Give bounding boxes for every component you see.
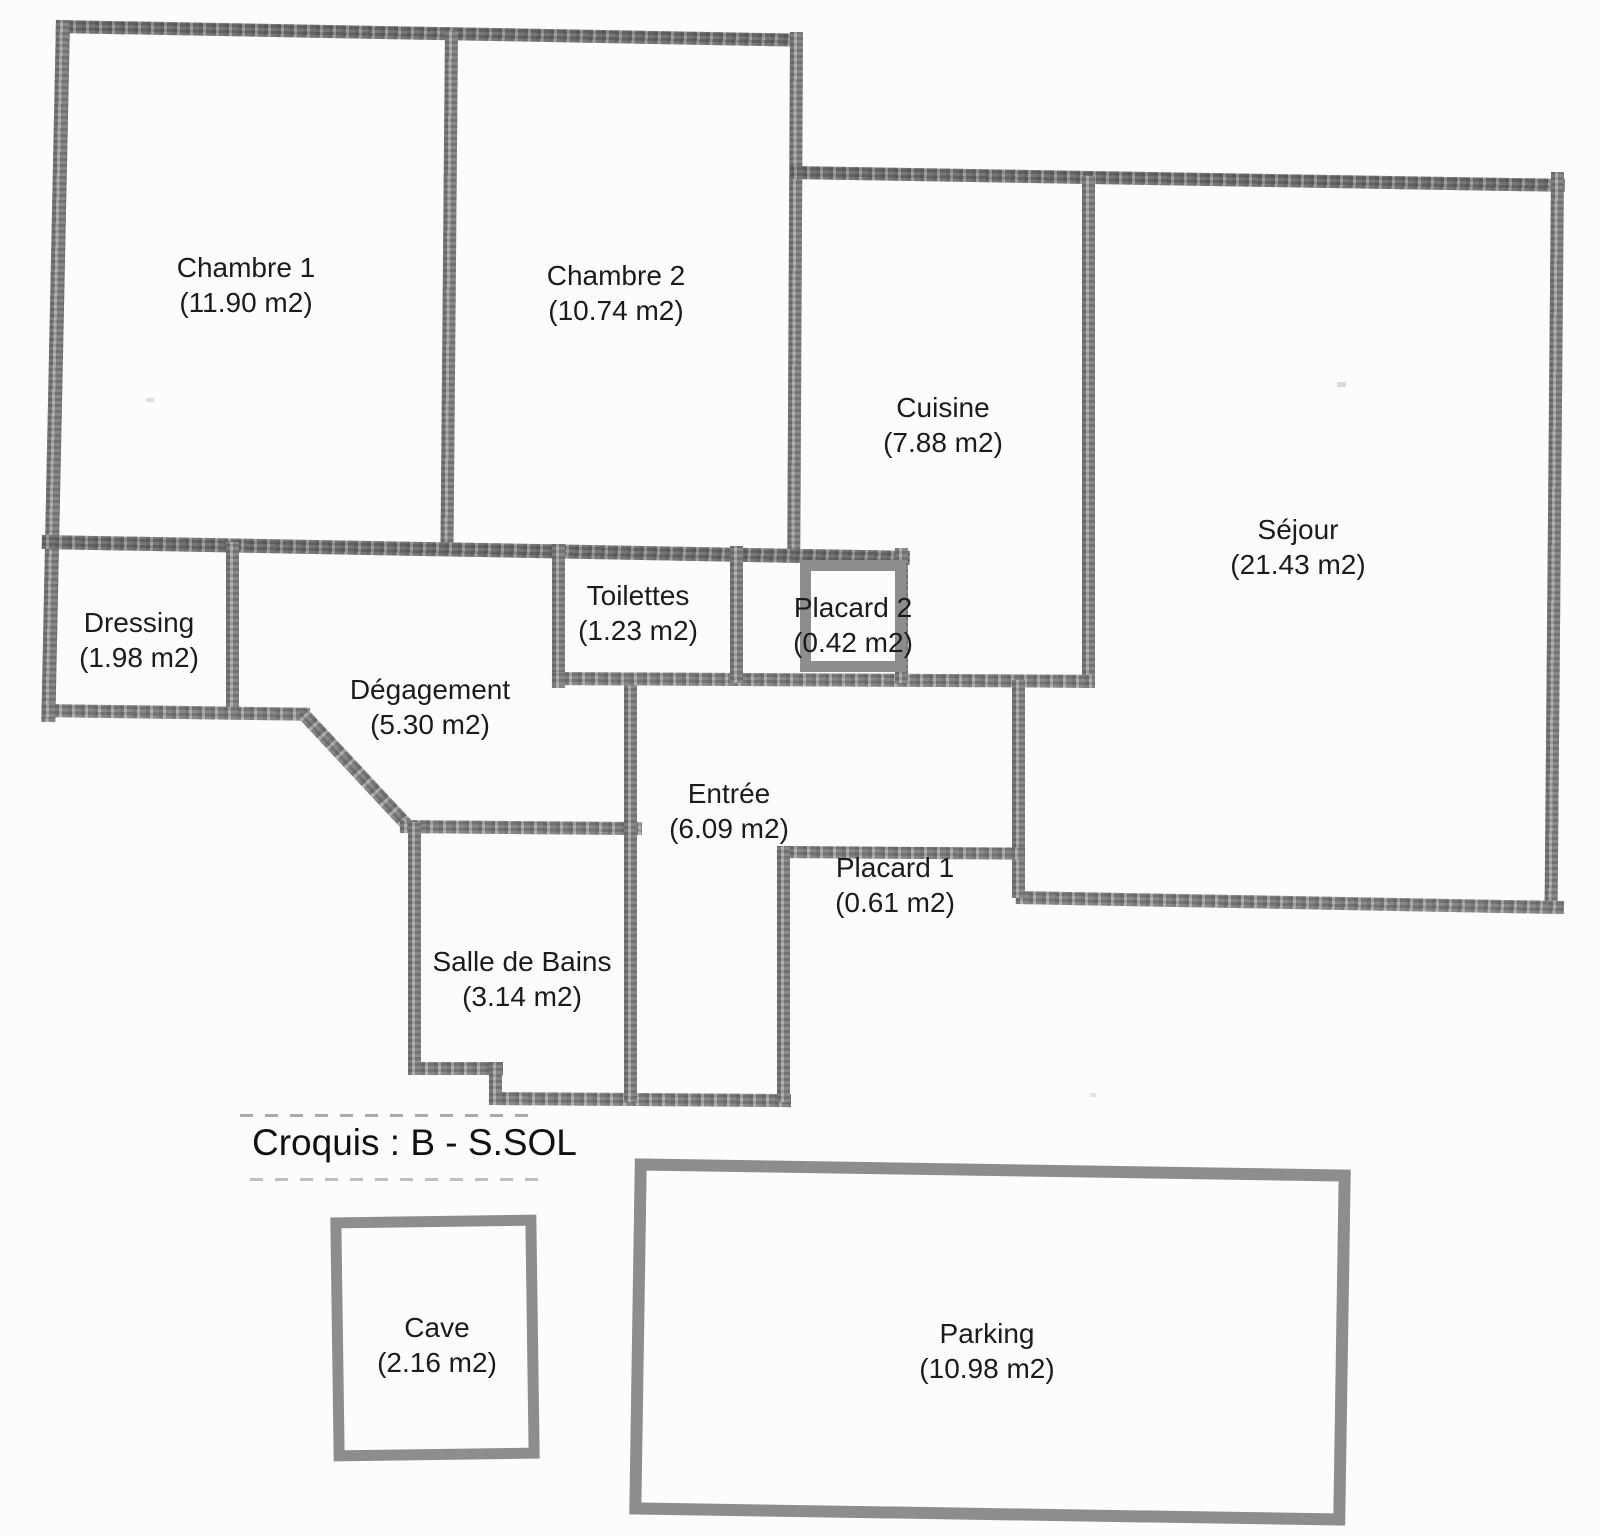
room-label-degagement: Dégagement (5.30 m2) — [350, 672, 510, 742]
room-name: Placard 2 — [794, 592, 912, 623]
room-label-placard-2: Placard 2 (0.42 m2) — [793, 590, 913, 660]
wall-cuisine-sejour-divider — [1082, 176, 1095, 688]
room-name: Placard 1 — [836, 852, 954, 883]
room-name: Cuisine — [896, 392, 989, 423]
scan-speck — [146, 398, 154, 402]
room-area: (5.30 m2) — [350, 707, 510, 742]
room-name: Salle de Bains — [432, 946, 611, 977]
room-label-cave: Cave (2.16 m2) — [377, 1310, 497, 1380]
room-area: (1.98 m2) — [79, 640, 199, 675]
room-name: Parking — [940, 1318, 1035, 1349]
room-area: (0.61 m2) — [835, 885, 955, 920]
wall-chambre-divider — [441, 30, 458, 545]
wall-corridor-top — [42, 535, 910, 565]
room-area: (10.74 m2) — [547, 293, 686, 328]
wall-entree-left — [624, 678, 637, 1102]
wall-sejour-right — [1545, 172, 1564, 909]
wall-chambre2-right — [787, 32, 803, 553]
room-label-chambre-2: Chambre 2 (10.74 m2) — [547, 258, 686, 328]
room-name: Chambre 1 — [177, 252, 316, 283]
floor-plan: Chambre 1 (11.90 m2) Chambre 2 (10.74 m2… — [0, 0, 1600, 1536]
room-area: (0.42 m2) — [793, 625, 913, 660]
room-label-placard-1: Placard 1 (0.61 m2) — [835, 850, 955, 920]
wall-left-outer — [41, 20, 70, 722]
room-area: (2.16 m2) — [377, 1345, 497, 1380]
room-name: Dégagement — [350, 674, 510, 705]
wall-entree-right — [1012, 680, 1025, 898]
room-label-cuisine: Cuisine (7.88 m2) — [883, 390, 1003, 460]
room-area: (21.43 m2) — [1230, 547, 1365, 582]
wall-placard1-left — [777, 846, 790, 1102]
room-label-dressing: Dressing (1.98 m2) — [79, 605, 199, 675]
wall-dressing-bottom — [42, 704, 310, 721]
wall-sejour-bottom — [1016, 891, 1564, 914]
wall-salle-de-bains-top — [400, 820, 642, 835]
room-label-sejour: Séjour (21.43 m2) — [1230, 512, 1365, 582]
room-area: (1.23 m2) — [578, 613, 698, 648]
room-label-chambre-1: Chambre 1 (11.90 m2) — [177, 250, 316, 320]
wall-cuisine-sejour-top — [790, 166, 1565, 192]
room-area: (7.88 m2) — [883, 425, 1003, 460]
wall-toilettes-right — [730, 546, 743, 683]
room-area: (6.09 m2) — [669, 811, 789, 846]
room-name: Chambre 2 — [547, 260, 686, 291]
wall-dressing-right — [226, 542, 239, 718]
room-label-entree: Entrée (6.09 m2) — [669, 776, 789, 846]
room-name: Cave — [404, 1312, 469, 1343]
room-label-toilettes: Toilettes (1.23 m2) — [578, 578, 698, 648]
room-label-salle-de-bains: Salle de Bains (3.14 m2) — [432, 944, 611, 1014]
room-label-parking: Parking (10.98 m2) — [919, 1316, 1054, 1386]
wall-bottom-center — [489, 1092, 791, 1107]
room-area: (11.90 m2) — [177, 285, 316, 320]
room-area: (3.14 m2) — [432, 979, 611, 1014]
room-name: Dressing — [84, 607, 194, 638]
dashed-line-below-caption — [250, 1178, 538, 1181]
room-name: Entrée — [688, 778, 771, 809]
scan-speck — [1337, 382, 1346, 387]
scan-speck — [1090, 1093, 1096, 1097]
room-name: Toilettes — [587, 580, 690, 611]
plan-caption: Croquis : B - S.SOL — [252, 1122, 577, 1164]
wall-toilettes-left — [552, 544, 565, 688]
wall-top-chambres — [56, 20, 802, 47]
room-area: (10.98 m2) — [919, 1351, 1054, 1386]
wall-salle-de-bains-left — [408, 822, 421, 1075]
dashed-line-above-caption — [240, 1114, 540, 1117]
room-name: Séjour — [1258, 514, 1339, 545]
